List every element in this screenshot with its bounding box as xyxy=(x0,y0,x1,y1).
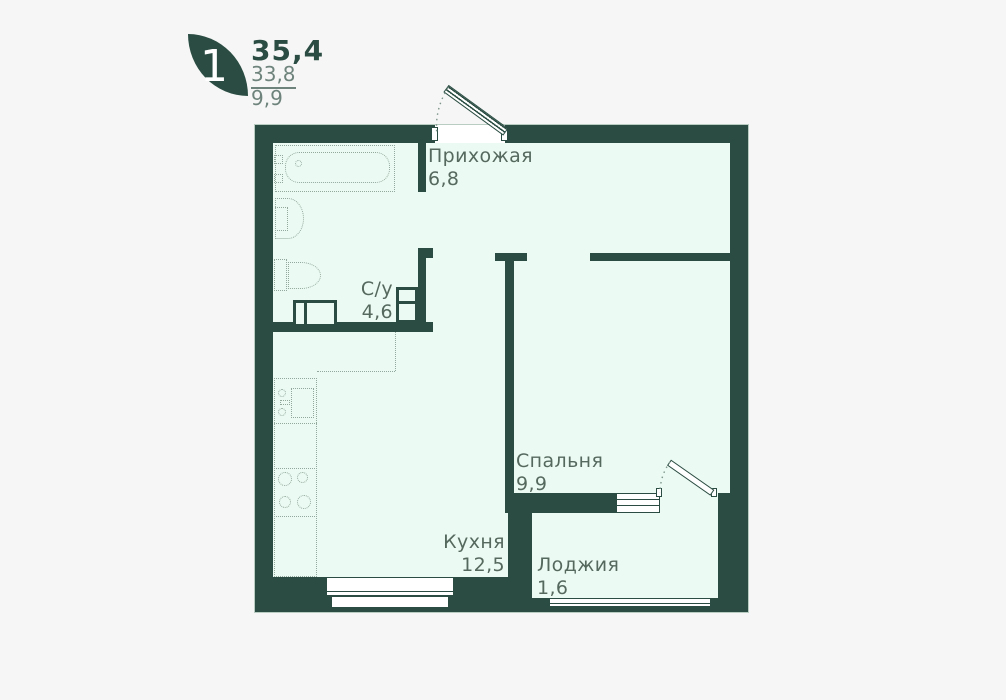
entry-door-swing-arc xyxy=(425,80,515,140)
wall-right xyxy=(730,125,748,612)
room-area-hallway: 6,8 xyxy=(428,168,538,191)
room-label-hallway: Прихожая 6,8 xyxy=(428,145,538,191)
room-label-kitchen: Кухня 12,5 xyxy=(400,531,505,577)
bathroom-cabinet-shelf-line xyxy=(399,301,415,304)
living-area-value: 33,8 xyxy=(251,62,296,89)
kitchen-zone-dash-horizontal xyxy=(317,371,395,372)
wall-top-left xyxy=(255,125,435,143)
counter-sink-basin xyxy=(291,388,314,418)
loggia-glazing-line xyxy=(550,603,710,604)
counter-divider-3 xyxy=(274,516,317,517)
kitchen-window-frame-line xyxy=(327,591,453,592)
balcony-door-swing-arc xyxy=(655,455,715,500)
bedroom-loggia-window xyxy=(616,493,660,513)
counter-divider-2 xyxy=(274,468,317,469)
wall-hallway-bedroom xyxy=(590,253,730,261)
stove-burner-3 xyxy=(279,496,291,508)
kitchen-counter xyxy=(274,378,317,577)
room-name-loggia: Лоджия xyxy=(537,554,647,577)
bath-tap-upper xyxy=(274,155,283,164)
wall-left xyxy=(255,125,273,612)
room-name-bathroom: С/у xyxy=(343,278,393,301)
room-label-bathroom: С/у 4,6 xyxy=(343,278,393,324)
counter-sink-tap-1 xyxy=(278,389,286,397)
rooms-count: 1 xyxy=(200,45,228,89)
kitchen-window xyxy=(327,578,453,595)
room-name-kitchen: Кухня xyxy=(400,531,505,554)
counter-faucet xyxy=(280,400,290,405)
floor-plan: Прихожая 6,8 С/у 4,6 Спальня 9,9 Кухня 1… xyxy=(255,125,748,612)
floor-main xyxy=(273,143,730,577)
page: 1 35,4 33,8 9,9 xyxy=(0,0,1006,700)
bathroom-cabinet xyxy=(396,287,418,323)
counter-divider-1 xyxy=(274,423,317,424)
living-area: 33,8 xyxy=(251,62,296,89)
room-label-loggia: Лоджия 1,6 xyxy=(537,554,647,600)
stove-burner-4 xyxy=(297,495,311,509)
sink-basin xyxy=(275,207,288,231)
toilet-tank xyxy=(274,259,287,291)
bedroom-window-line-1 xyxy=(617,499,659,500)
room-label-bedroom: Спальня 9,9 xyxy=(516,450,626,496)
wall-bathroom-right-lower xyxy=(418,248,426,332)
stove-burner-1 xyxy=(278,472,292,486)
room-area-bedroom: 9,9 xyxy=(516,473,626,496)
room-name-hallway: Прихожая xyxy=(428,145,538,168)
wall-hallway-tee xyxy=(495,253,527,261)
wall-top-right xyxy=(505,125,748,143)
counter-sink-tap-2 xyxy=(278,408,286,416)
washing-machine-door-line xyxy=(304,303,307,324)
wall-loggia-right xyxy=(718,493,730,612)
washing-machine xyxy=(293,300,337,327)
room-area-bathroom: 4,6 xyxy=(343,301,393,324)
bathtub-drain xyxy=(295,160,302,167)
leaf-logo: 1 xyxy=(188,34,248,96)
wall-bedroom-left xyxy=(505,261,514,493)
room-name-bedroom: Спальня xyxy=(516,450,626,473)
wall-kitchen-loggia xyxy=(508,493,532,612)
wall-bathroom-nub xyxy=(418,248,433,258)
bath-tap-lower xyxy=(274,174,283,183)
kitchen-window-sill xyxy=(332,597,448,607)
bathtub-basin xyxy=(285,152,390,183)
room-area-kitchen: 12,5 xyxy=(400,554,505,577)
kitchen-area-value: 9,9 xyxy=(251,86,283,110)
kitchen-zone-dash-vertical xyxy=(395,332,396,371)
room-area-loggia: 1,6 xyxy=(537,577,647,600)
bedroom-window-line-2 xyxy=(617,505,659,506)
wall-bathroom-right-upper xyxy=(418,143,426,192)
stove-burner-2 xyxy=(297,472,308,483)
